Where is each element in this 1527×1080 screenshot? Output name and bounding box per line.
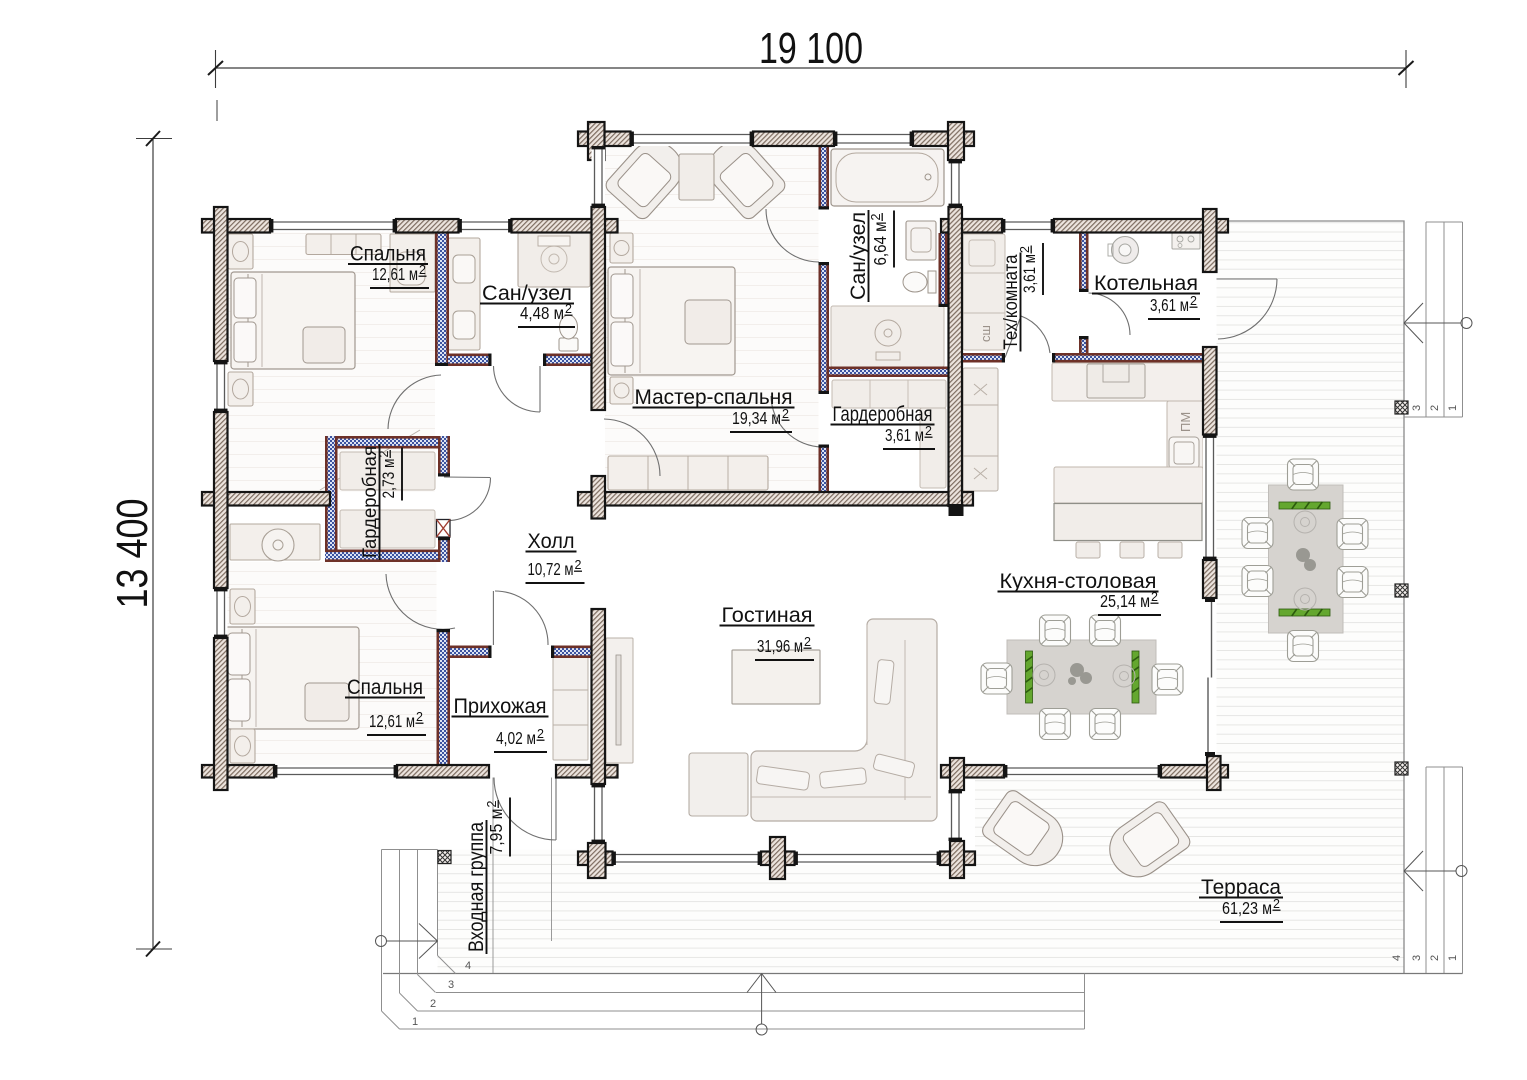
svg-text:ПМ: ПМ xyxy=(1178,412,1193,432)
svg-text:2,73 м: 2,73 м xyxy=(380,459,398,499)
svg-text:4,02 м: 4,02 м xyxy=(496,728,536,748)
svg-text:4: 4 xyxy=(1391,955,1403,961)
svg-text:2: 2 xyxy=(1273,897,1280,911)
svg-text:2: 2 xyxy=(416,710,423,724)
svg-text:3: 3 xyxy=(1411,955,1423,961)
svg-text:Гардеробная: Гардеробная xyxy=(833,403,933,426)
svg-text:61,23 м: 61,23 м xyxy=(1222,898,1272,918)
svg-text:10,72 м: 10,72 м xyxy=(528,559,574,579)
svg-text:31,96 м: 31,96 м xyxy=(757,636,803,656)
svg-text:2: 2 xyxy=(565,302,572,316)
svg-text:6,64 м: 6,64 м xyxy=(870,222,890,266)
svg-text:Сан/узел: Сан/узел xyxy=(847,212,870,300)
svg-text:19 100: 19 100 xyxy=(759,24,863,73)
svg-text:Спальня: Спальня xyxy=(350,243,426,266)
svg-text:2: 2 xyxy=(782,407,789,421)
svg-text:Прихожая: Прихожая xyxy=(454,695,547,718)
svg-text:2: 2 xyxy=(925,424,932,438)
svg-text:4: 4 xyxy=(465,960,471,972)
svg-text:2: 2 xyxy=(537,727,544,741)
svg-text:сш: сш xyxy=(978,325,993,342)
svg-text:2: 2 xyxy=(804,635,811,649)
svg-text:3,61 м: 3,61 м xyxy=(885,425,924,445)
svg-text:2: 2 xyxy=(1190,294,1197,308)
svg-text:Гостиная: Гостиная xyxy=(722,604,813,627)
svg-text:19,34 м: 19,34 м xyxy=(732,408,781,428)
svg-text:3,61 м: 3,61 м xyxy=(1021,254,1039,293)
svg-text:Котельная: Котельная xyxy=(1094,272,1198,295)
svg-text:Мастер-спальня: Мастер-спальня xyxy=(635,386,793,409)
svg-text:2: 2 xyxy=(1429,955,1441,961)
svg-text:2: 2 xyxy=(485,801,499,808)
svg-text:Сан/узел: Сан/узел xyxy=(482,282,572,305)
svg-text:3,61 м: 3,61 м xyxy=(1150,295,1189,315)
svg-text:13 400: 13 400 xyxy=(108,499,157,609)
svg-text:4,48 м: 4,48 м xyxy=(520,303,564,323)
svg-text:1: 1 xyxy=(1447,955,1459,961)
svg-text:12,61 м: 12,61 м xyxy=(369,711,415,731)
svg-text:12,61 м: 12,61 м xyxy=(372,264,418,284)
svg-text:2: 2 xyxy=(1429,405,1441,411)
svg-text:2: 2 xyxy=(869,214,883,221)
svg-text:1: 1 xyxy=(1447,405,1459,411)
svg-text:Спальня: Спальня xyxy=(347,676,423,699)
svg-text:1: 1 xyxy=(412,1016,418,1028)
svg-text:Тех/комната: Тех/комната xyxy=(1001,254,1022,349)
svg-text:3: 3 xyxy=(448,979,454,991)
svg-text:2: 2 xyxy=(575,558,582,572)
svg-text:2: 2 xyxy=(1151,590,1158,604)
svg-text:25,14 м: 25,14 м xyxy=(1100,591,1150,611)
svg-text:2: 2 xyxy=(419,263,426,277)
svg-text:2: 2 xyxy=(1018,246,1032,253)
svg-text:Кухня-столовая: Кухня-столовая xyxy=(1000,570,1157,593)
svg-text:Терраса: Терраса xyxy=(1201,876,1281,899)
svg-text:2: 2 xyxy=(430,998,436,1010)
svg-text:Гардеробная: Гардеробная xyxy=(360,446,381,558)
svg-text:2: 2 xyxy=(377,451,391,458)
svg-text:3: 3 xyxy=(1411,405,1423,411)
svg-text:7,95 м: 7,95 м xyxy=(486,809,506,855)
svg-text:Входная группа: Входная группа xyxy=(465,822,488,952)
svg-text:Холл: Холл xyxy=(528,530,575,553)
